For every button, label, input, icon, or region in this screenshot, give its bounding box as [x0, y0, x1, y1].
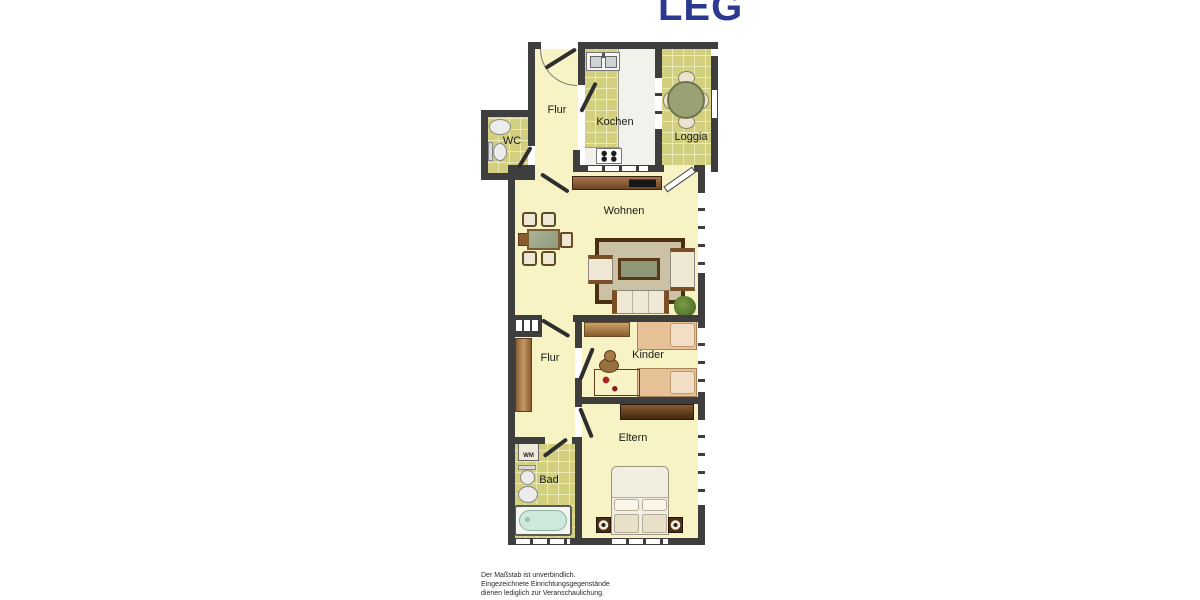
glass-block — [532, 320, 538, 331]
bathtub — [514, 505, 572, 536]
label-wohnen: Wohnen — [604, 205, 645, 217]
kinder-bed-1 — [637, 320, 697, 350]
pillow — [642, 499, 667, 511]
label-kinder: Kinder — [632, 349, 664, 361]
wall-segment — [575, 397, 698, 404]
sofa — [612, 290, 669, 314]
wall-segment — [528, 42, 535, 117]
wall-segment — [578, 42, 718, 49]
wall-segment — [481, 110, 535, 117]
leg-logo: LEG — [658, 0, 743, 30]
eltern-wardrobe — [620, 404, 694, 420]
wall-segment — [508, 437, 545, 444]
wall-segment — [575, 322, 582, 348]
wall-segment — [578, 49, 585, 85]
dining-chair — [560, 232, 573, 248]
plant — [674, 296, 696, 317]
sink-faucet — [602, 53, 605, 58]
dining-chair — [541, 212, 556, 227]
label-kochen: Kochen — [596, 116, 633, 128]
washing-machine: WM — [518, 443, 539, 461]
label-flur-mid: Flur — [541, 352, 560, 364]
window-eltern — [698, 420, 705, 505]
bad-toilet — [520, 470, 535, 485]
label-flur-top: Flur — [548, 104, 567, 116]
teddy-bear-head — [604, 350, 616, 362]
window-bad — [516, 539, 570, 544]
bed-cushion — [642, 514, 667, 533]
dining-chair — [541, 251, 556, 266]
dining-chair — [522, 212, 537, 227]
play-table — [594, 369, 640, 396]
glass-block — [524, 320, 530, 331]
bed-seam — [612, 497, 668, 498]
bathtub-drain — [525, 517, 530, 522]
loggia-table — [667, 81, 705, 119]
label-loggia: Loggia — [674, 131, 707, 143]
wall-segment — [575, 444, 582, 538]
dining-table — [527, 229, 560, 250]
wall-segment — [528, 110, 535, 146]
label-eltern: Eltern — [619, 432, 648, 444]
nightstand-right — [668, 517, 683, 533]
stove — [596, 148, 622, 164]
kinder-bed-2 — [637, 368, 697, 397]
label-wc: WC — [503, 135, 521, 147]
wall-segment — [573, 315, 698, 322]
disclaimer-text: Der Maßstab ist unverbindlich. Eingezeic… — [481, 571, 610, 599]
window-eltern-bottom — [612, 539, 668, 544]
bed-cushion — [614, 514, 639, 533]
hall-wardrobe — [515, 338, 532, 412]
wc-sink — [489, 119, 511, 135]
sideboard — [572, 176, 662, 190]
coffee-table — [618, 258, 660, 280]
kinder-desk — [584, 322, 630, 337]
chaise — [670, 248, 695, 291]
disclaimer-line-1: Der Maßstab ist unverbindlich. — [481, 571, 610, 580]
pillow — [614, 499, 639, 511]
sink-basin — [605, 56, 617, 68]
disclaimer-line-2: Eingezeichnete Einrichtungsgegenstände — [481, 580, 610, 589]
armchair — [588, 255, 613, 284]
pillow — [670, 371, 695, 394]
kitchen-sink — [586, 52, 620, 71]
disclaimer-line-3: dienen lediglich zur Veranschaulichung. — [481, 589, 610, 598]
window-wohnen — [698, 193, 705, 273]
loggia-railing-opening — [712, 90, 717, 118]
wall-segment — [508, 172, 515, 545]
kitchen-counter-right — [618, 49, 655, 165]
window-kitchen-loggia — [655, 78, 662, 130]
nightstand-left — [596, 517, 611, 533]
dining-chair — [522, 251, 537, 266]
washing-machine-label: WM — [523, 453, 534, 459]
pillow — [670, 323, 695, 347]
glass-block — [516, 320, 522, 331]
bad-sink — [518, 486, 538, 503]
wall-segment — [572, 437, 582, 444]
label-bad: Bad — [539, 474, 559, 486]
sink-basin — [590, 56, 602, 68]
window-kitchen-hatch — [588, 166, 648, 171]
wall-segment — [481, 110, 488, 180]
stereo — [629, 179, 656, 187]
window-kinder — [698, 328, 705, 392]
double-bed — [611, 466, 669, 535]
